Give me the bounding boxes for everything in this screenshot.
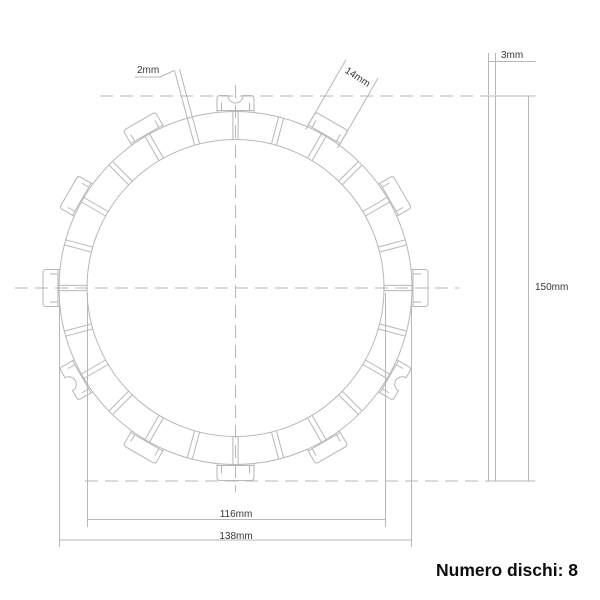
- dim-label-inner-diameter: 116mm: [220, 510, 253, 520]
- dim-label-outer-diameter: 138mm: [219, 532, 252, 542]
- tab: [378, 176, 411, 217]
- dim-14mm-extensions: [305, 60, 378, 149]
- dim-label-groove-width: 2mm: [137, 66, 159, 76]
- tab-notched: [378, 360, 411, 401]
- leader-2mm: [135, 69, 192, 118]
- tab: [307, 431, 348, 464]
- tab: [123, 112, 164, 145]
- side-view-plate: [489, 96, 496, 481]
- tab: [123, 431, 164, 464]
- clutch-disc-drawing: [0, 0, 600, 600]
- tab: [60, 176, 93, 217]
- dim-label-overall-diameter: 150mm: [535, 283, 568, 293]
- dim-label-thickness: 3mm: [501, 51, 523, 61]
- disc-count-caption: Numero dischi: 8: [436, 562, 578, 580]
- technical-drawing-page: 2mm 14mm 3mm 150mm 116mm 138mm Numero di…: [0, 0, 600, 600]
- centerlines: [15, 85, 488, 492]
- dimension-lines: [60, 53, 536, 547]
